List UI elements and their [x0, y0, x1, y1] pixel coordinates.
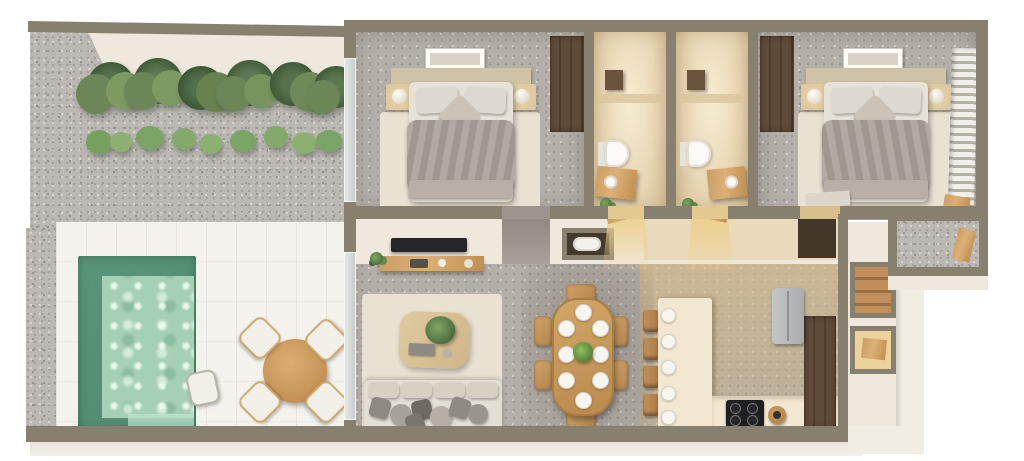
- bedroom2-wardrobe: [760, 36, 794, 132]
- island-plate-5: [661, 410, 676, 425]
- bedroom-2: [758, 20, 978, 224]
- kettle: [773, 411, 781, 419]
- bedroom1-window-glass: [344, 58, 356, 202]
- sofa-back-cushion-3: [434, 382, 465, 398]
- bedroom-1: [352, 20, 588, 220]
- dining-chair-left-2: [534, 360, 552, 390]
- pool-terrace: [0, 0, 360, 461]
- bedroom2-lamp-right: [929, 89, 944, 104]
- entry-outer-base: [848, 426, 924, 454]
- dining-centerpiece-plant: [573, 342, 593, 362]
- kitchen-tall-cabinets: [804, 316, 836, 428]
- console-tray: [410, 259, 428, 268]
- bedroom1-bed: [409, 82, 513, 202]
- cooktop: [726, 400, 764, 428]
- wall-bath2-bed2: [748, 20, 758, 214]
- coffee-table-plant: [425, 316, 456, 345]
- refrigerator: [772, 288, 804, 344]
- bathroom1-shower-ledge: [598, 94, 662, 103]
- pool: [78, 256, 196, 430]
- washer-bundle: [573, 237, 601, 251]
- cooktop-burner-4: [747, 415, 758, 426]
- sofa-back-cushion-2: [401, 382, 432, 398]
- bedroom2-window-blinds: [948, 48, 978, 207]
- wall-bottom: [26, 426, 852, 442]
- media-console: [380, 256, 484, 271]
- island-plate-3: [661, 360, 676, 375]
- island-plate-4: [661, 386, 676, 401]
- rear-lightwell: [888, 212, 988, 276]
- dining-plate-7: [592, 372, 609, 389]
- bedroom1-duvet: [407, 120, 515, 186]
- sofa-cushion-6: [468, 404, 488, 424]
- dining-plate-1: [575, 304, 592, 321]
- cooktop-burner-2: [747, 403, 758, 414]
- bar-stool-4: [643, 394, 659, 416]
- bedroom1-wall-art: [425, 48, 485, 70]
- tv: [391, 238, 467, 252]
- door-gap-bedroom1: [502, 206, 550, 219]
- door-gap-bathroom1: [608, 206, 644, 219]
- sofa: [364, 380, 502, 432]
- bathroom2-vanity: [707, 166, 748, 200]
- kitchen: [640, 216, 840, 432]
- bedroom2-lamp-left: [807, 89, 822, 104]
- bathroom-1: [594, 20, 666, 220]
- dining-chair-left-1: [534, 316, 552, 346]
- island-plate-1: [661, 308, 676, 323]
- cooktop-burner-3: [730, 415, 741, 426]
- pool-shallow-water: [102, 276, 194, 418]
- bottom-ledge: [30, 442, 862, 456]
- wall-bath1-bath2: [666, 20, 676, 214]
- sofa-back-cushion-4: [467, 382, 498, 398]
- console-vase: [438, 259, 446, 267]
- coffee-table: [398, 311, 470, 369]
- wall-bed1-bath1: [584, 20, 594, 214]
- dining-plate-6: [592, 346, 609, 363]
- console-plant: [370, 252, 383, 265]
- dining-plate-5: [592, 320, 609, 337]
- nook-wood-box: [861, 338, 887, 360]
- door-gap-hall-bedroom2: [800, 206, 840, 219]
- lightwell-outer-face: [888, 276, 988, 290]
- bar-stool-2: [643, 338, 659, 360]
- coffee-table-books: [408, 343, 434, 356]
- bedroom2-wall-art: [843, 48, 903, 70]
- living-slider-glass: [344, 252, 356, 420]
- kitchen-side-stool: [768, 406, 786, 424]
- coffee-table-bowl: [442, 348, 452, 358]
- dining-table: [552, 298, 614, 416]
- bathroom1-toilet: [605, 140, 629, 167]
- bathroom2-shower-fixture: [687, 70, 705, 90]
- wall-right-bedroom2: [976, 20, 988, 222]
- dining-area: [524, 270, 654, 432]
- bar-stool-1: [643, 310, 659, 332]
- bedroom1-duvet-fold: [409, 180, 513, 198]
- bathroom1-sink: [603, 175, 617, 189]
- sofa-back-cushion-1: [368, 382, 399, 398]
- bedroom1-lamp-left: [392, 89, 407, 104]
- console-bowl: [464, 259, 473, 268]
- bedroom1-wardrobe: [550, 36, 584, 132]
- dining-plate-8: [575, 392, 592, 409]
- dining-plate-2: [558, 320, 575, 337]
- floor-plan-render: [0, 0, 1024, 461]
- bathroom2-shower-ledge: [680, 94, 744, 103]
- bathroom2-sink: [724, 175, 738, 189]
- bathroom-2: [676, 20, 748, 220]
- sofa-cushion-1: [368, 396, 392, 420]
- wall-kitchen-right: [838, 214, 848, 432]
- door-gap-bathroom2: [692, 206, 728, 219]
- kitchen-island: [658, 298, 712, 432]
- bedroom1-lamp-right: [514, 89, 529, 104]
- fridge-door-slit: [787, 291, 789, 341]
- bedroom2-bed: [824, 82, 928, 202]
- entry-lit-nook: [850, 326, 896, 374]
- dining-plate-4: [558, 372, 575, 389]
- bedroom2-duvet: [822, 120, 930, 186]
- living-room: [352, 216, 512, 432]
- bathroom2-toilet: [687, 140, 711, 167]
- bathroom1-vanity: [595, 166, 638, 200]
- bar-stool-3: [643, 366, 659, 388]
- cooktop-burner-1: [730, 403, 741, 414]
- island-plate-2: [661, 334, 676, 349]
- bathroom1-shower-fixture: [605, 70, 623, 90]
- gravel-left-strip: [26, 228, 58, 430]
